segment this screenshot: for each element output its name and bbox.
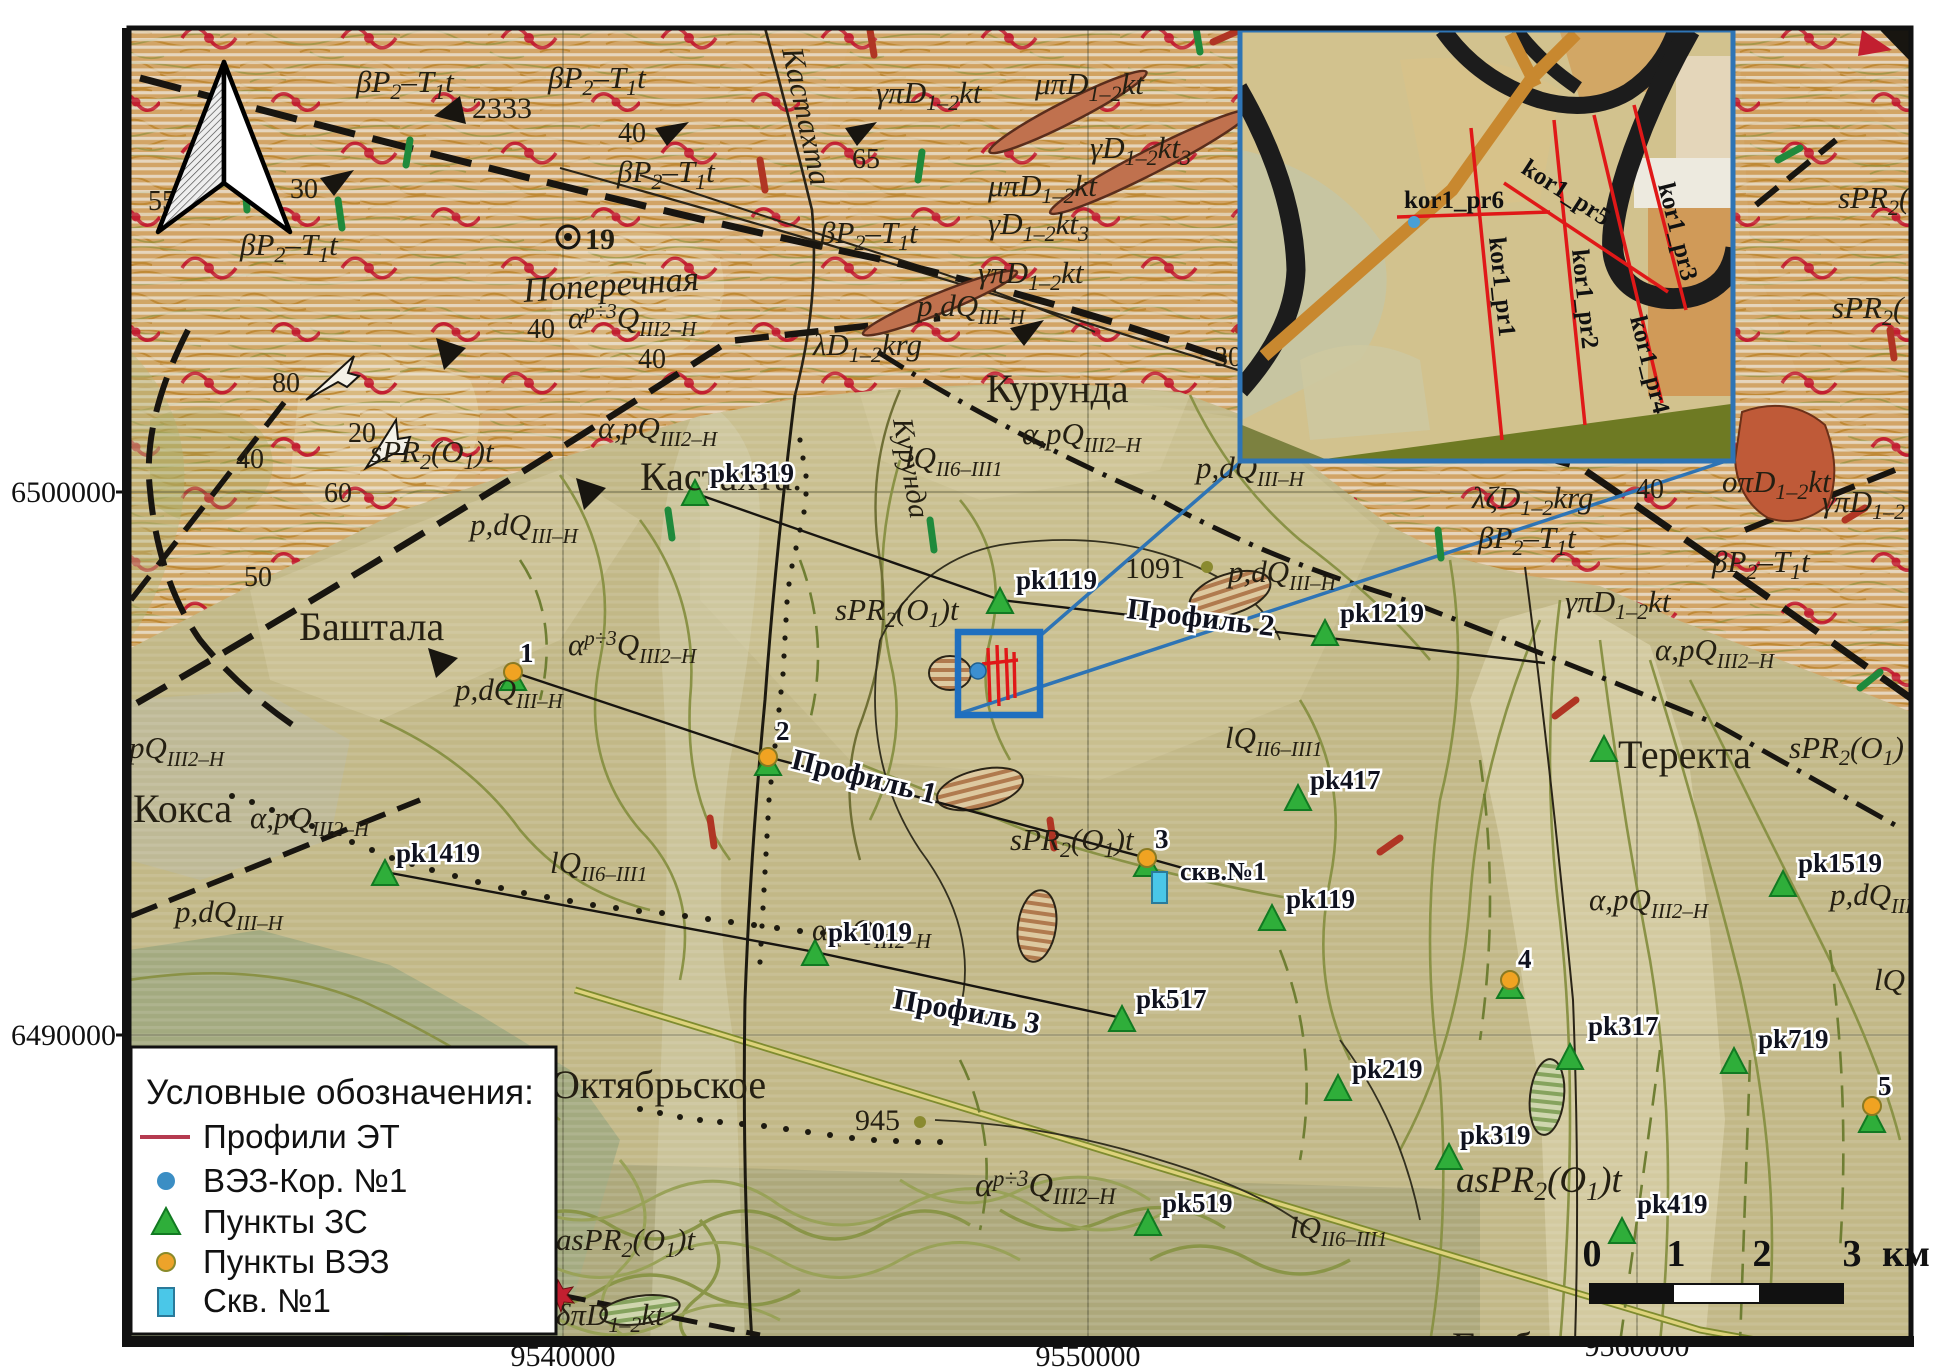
svg-text:9550000: 9550000 xyxy=(1036,1340,1141,1370)
svg-text:pk1119: pk1119 xyxy=(1016,565,1097,595)
svg-text:2: 2 xyxy=(776,716,790,746)
svg-text:19: 19 xyxy=(585,223,615,256)
svg-text:Скв. №1: Скв. №1 xyxy=(203,1282,331,1319)
svg-text:pk219: pk219 xyxy=(1352,1054,1423,1084)
svg-text:2333: 2333 xyxy=(472,92,532,125)
svg-text:Пункты ВЭЗ: Пункты ВЭЗ xyxy=(203,1243,390,1280)
svg-text:sPR2(: sPR2( xyxy=(1838,180,1911,220)
svg-text:lQ: lQ xyxy=(1874,962,1905,997)
svg-text:pk319: pk319 xyxy=(1460,1120,1531,1150)
svg-text:pk417: pk417 xyxy=(1310,765,1381,795)
svg-text:40: 40 xyxy=(527,314,555,345)
svg-text:pk119: pk119 xyxy=(1286,884,1355,914)
svg-text:945: 945 xyxy=(855,1104,900,1137)
svg-text:pk1419: pk1419 xyxy=(396,838,480,868)
svg-text:sPR2(: sPR2( xyxy=(1832,290,1905,330)
svg-text:Октябрьское: Октябрьское xyxy=(551,1062,766,1107)
svg-text:1: 1 xyxy=(1667,1233,1686,1275)
svg-text:км: км xyxy=(1882,1233,1930,1275)
svg-text:pk1319: pk1319 xyxy=(710,458,794,488)
svg-text:2: 2 xyxy=(1753,1233,1772,1275)
svg-text:sPR2(O1)t: sPR2(O1)t xyxy=(370,434,495,474)
svg-text:0: 0 xyxy=(1583,1233,1602,1275)
svg-text:1: 1 xyxy=(520,638,534,668)
svg-text:pk419: pk419 xyxy=(1637,1189,1708,1219)
svg-text:40: 40 xyxy=(236,444,264,475)
svg-text:Профили ЭТ: Профили ЭТ xyxy=(203,1118,400,1155)
svg-text:sPR2(O1)t: sPR2(O1)t xyxy=(835,592,960,632)
svg-text:Условные обозначения:: Условные обозначения: xyxy=(146,1073,534,1112)
svg-text:9540000: 9540000 xyxy=(511,1340,616,1370)
svg-text:30: 30 xyxy=(290,174,318,205)
svg-text:65: 65 xyxy=(852,144,880,175)
svg-text:9560000: 9560000 xyxy=(1585,1330,1690,1363)
svg-text:50: 50 xyxy=(244,562,272,593)
svg-text:4: 4 xyxy=(1518,944,1532,974)
svg-text:6500000: 6500000 xyxy=(11,476,116,509)
svg-text:pk719: pk719 xyxy=(1758,1024,1829,1054)
svg-text:6490000: 6490000 xyxy=(11,1019,116,1052)
svg-text:pk1219: pk1219 xyxy=(1340,598,1424,628)
svg-text:Кокса: Кокса xyxy=(133,786,232,831)
svg-text:Теректа: Теректа xyxy=(1618,732,1751,777)
svg-text:20: 20 xyxy=(348,418,376,449)
svg-text:60: 60 xyxy=(324,478,352,509)
svg-text:5: 5 xyxy=(1878,1071,1892,1101)
svg-text:sPR2(O1)t: sPR2(O1)t xyxy=(1010,822,1135,862)
svg-text:pk519: pk519 xyxy=(1162,1188,1233,1218)
svg-text:3: 3 xyxy=(1843,1233,1862,1275)
svg-text:40: 40 xyxy=(1636,474,1664,505)
svg-text:pk517: pk517 xyxy=(1136,984,1207,1014)
svg-text:Баштала: Баштала xyxy=(299,604,445,649)
svg-text:kor1_pr6: kor1_pr6 xyxy=(1404,187,1504,214)
svg-text:ВЭЗ-Кор. №1: ВЭЗ-Кор. №1 xyxy=(203,1162,407,1199)
svg-text:pk1519: pk1519 xyxy=(1798,848,1882,878)
svg-text:40: 40 xyxy=(618,118,646,149)
svg-text:40: 40 xyxy=(638,344,666,375)
svg-text:Пункты ЗС: Пункты ЗС xyxy=(203,1203,368,1240)
svg-text:1091: 1091 xyxy=(1125,552,1185,585)
svg-text:80: 80 xyxy=(272,368,300,399)
svg-text:pk317: pk317 xyxy=(1588,1011,1659,1041)
svg-text:pk1019: pk1019 xyxy=(828,917,912,947)
svg-text:3: 3 xyxy=(1155,824,1169,854)
svg-text:Курунда: Курунда xyxy=(986,366,1129,411)
svg-text:скв.№1: скв.№1 xyxy=(1180,857,1266,886)
